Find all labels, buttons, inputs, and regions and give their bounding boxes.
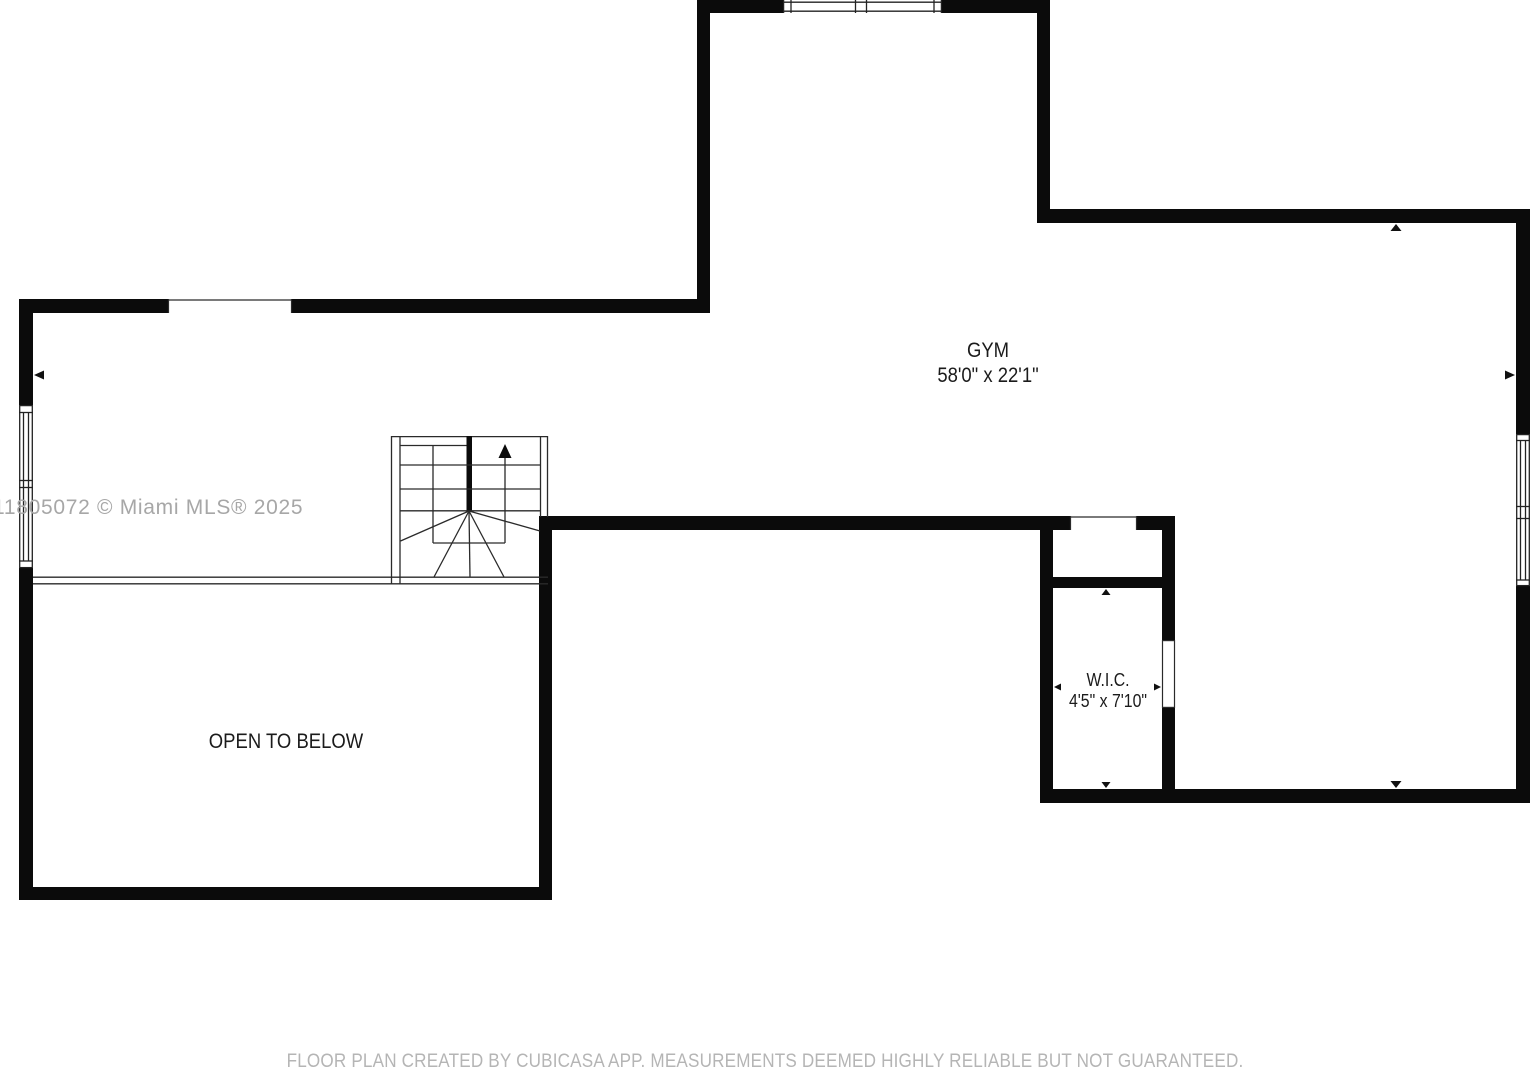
- room-name: W.I.C.: [1069, 670, 1147, 691]
- wall-wic-left: [1040, 516, 1053, 803]
- window-top: [783, 0, 942, 13]
- floor-plan-drawing: [0, 0, 1530, 1068]
- door-opening-hall: [1070, 516, 1137, 530]
- stair-up-arrow-icon: [499, 444, 512, 458]
- room-label-gym: GYM 58'0" x 22'1": [937, 339, 1038, 389]
- wall-gym-right-lower: [1516, 586, 1530, 803]
- wall-wic-inner: [1046, 577, 1168, 588]
- wall-middle-left: [539, 516, 1070, 530]
- dimension-arrow-up-icon: [1391, 224, 1402, 231]
- dimension-arrow-left-icon: [1054, 684, 1061, 691]
- wall-wic-right-lower: [1162, 708, 1175, 803]
- stair-center-divider: [467, 436, 473, 511]
- room-dimensions: 4'5" x 7'10": [1069, 691, 1147, 712]
- wall-leftroom-left-lower: [19, 568, 33, 900]
- floor-plan-page: GYM 58'0" x 22'1" OPEN TO BELOW W.I.C. 4…: [0, 0, 1530, 1068]
- wall-leftroom-top-b: [292, 299, 710, 313]
- wall-leftroom-left-upper: [19, 299, 33, 405]
- dimension-arrow-up-icon: [1102, 589, 1111, 595]
- dimension-arrow-left-icon: [34, 371, 44, 380]
- wall-protrusion-top-right: [942, 0, 1050, 13]
- wall-protrusion-left: [697, 0, 710, 313]
- wall-leftroom-bottom: [19, 887, 552, 900]
- railing-open-to-below: [33, 577, 548, 584]
- wall-gym-top: [1037, 209, 1530, 223]
- wall-leftroom-right: [539, 516, 552, 900]
- room-dimensions: 58'0" x 22'1": [937, 364, 1038, 389]
- wall-leftroom-top-a: [19, 299, 168, 313]
- footer-disclaimer: FLOOR PLAN CREATED BY CUBICASA APP. MEAS…: [77, 1051, 1454, 1068]
- dimension-arrow-down-icon: [1102, 782, 1111, 788]
- wall-protrusion-top-left: [697, 0, 783, 13]
- door-opening-wic: [1162, 640, 1175, 708]
- room-label-wic: W.I.C. 4'5" x 7'10": [1069, 670, 1147, 712]
- dimension-arrow-right-icon: [1505, 371, 1515, 380]
- staircase: [391, 436, 548, 584]
- room-name: GYM: [937, 339, 1038, 364]
- room-name: OPEN TO BELOW: [209, 730, 363, 755]
- window-left: [19, 405, 33, 568]
- door-opening-top-wall: [168, 299, 292, 313]
- dimension-arrow-down-icon: [1391, 781, 1402, 788]
- mls-watermark: 11805072 © Miami MLS® 2025: [0, 496, 303, 520]
- room-label-open-to-below: OPEN TO BELOW: [209, 730, 363, 755]
- window-right: [1516, 434, 1530, 586]
- walls-group: [19, 0, 1530, 900]
- wall-gym-bottom: [1040, 789, 1530, 803]
- wall-protrusion-right: [1037, 0, 1050, 222]
- wall-gym-right-upper: [1516, 209, 1530, 434]
- dimension-arrow-right-icon: [1154, 684, 1161, 691]
